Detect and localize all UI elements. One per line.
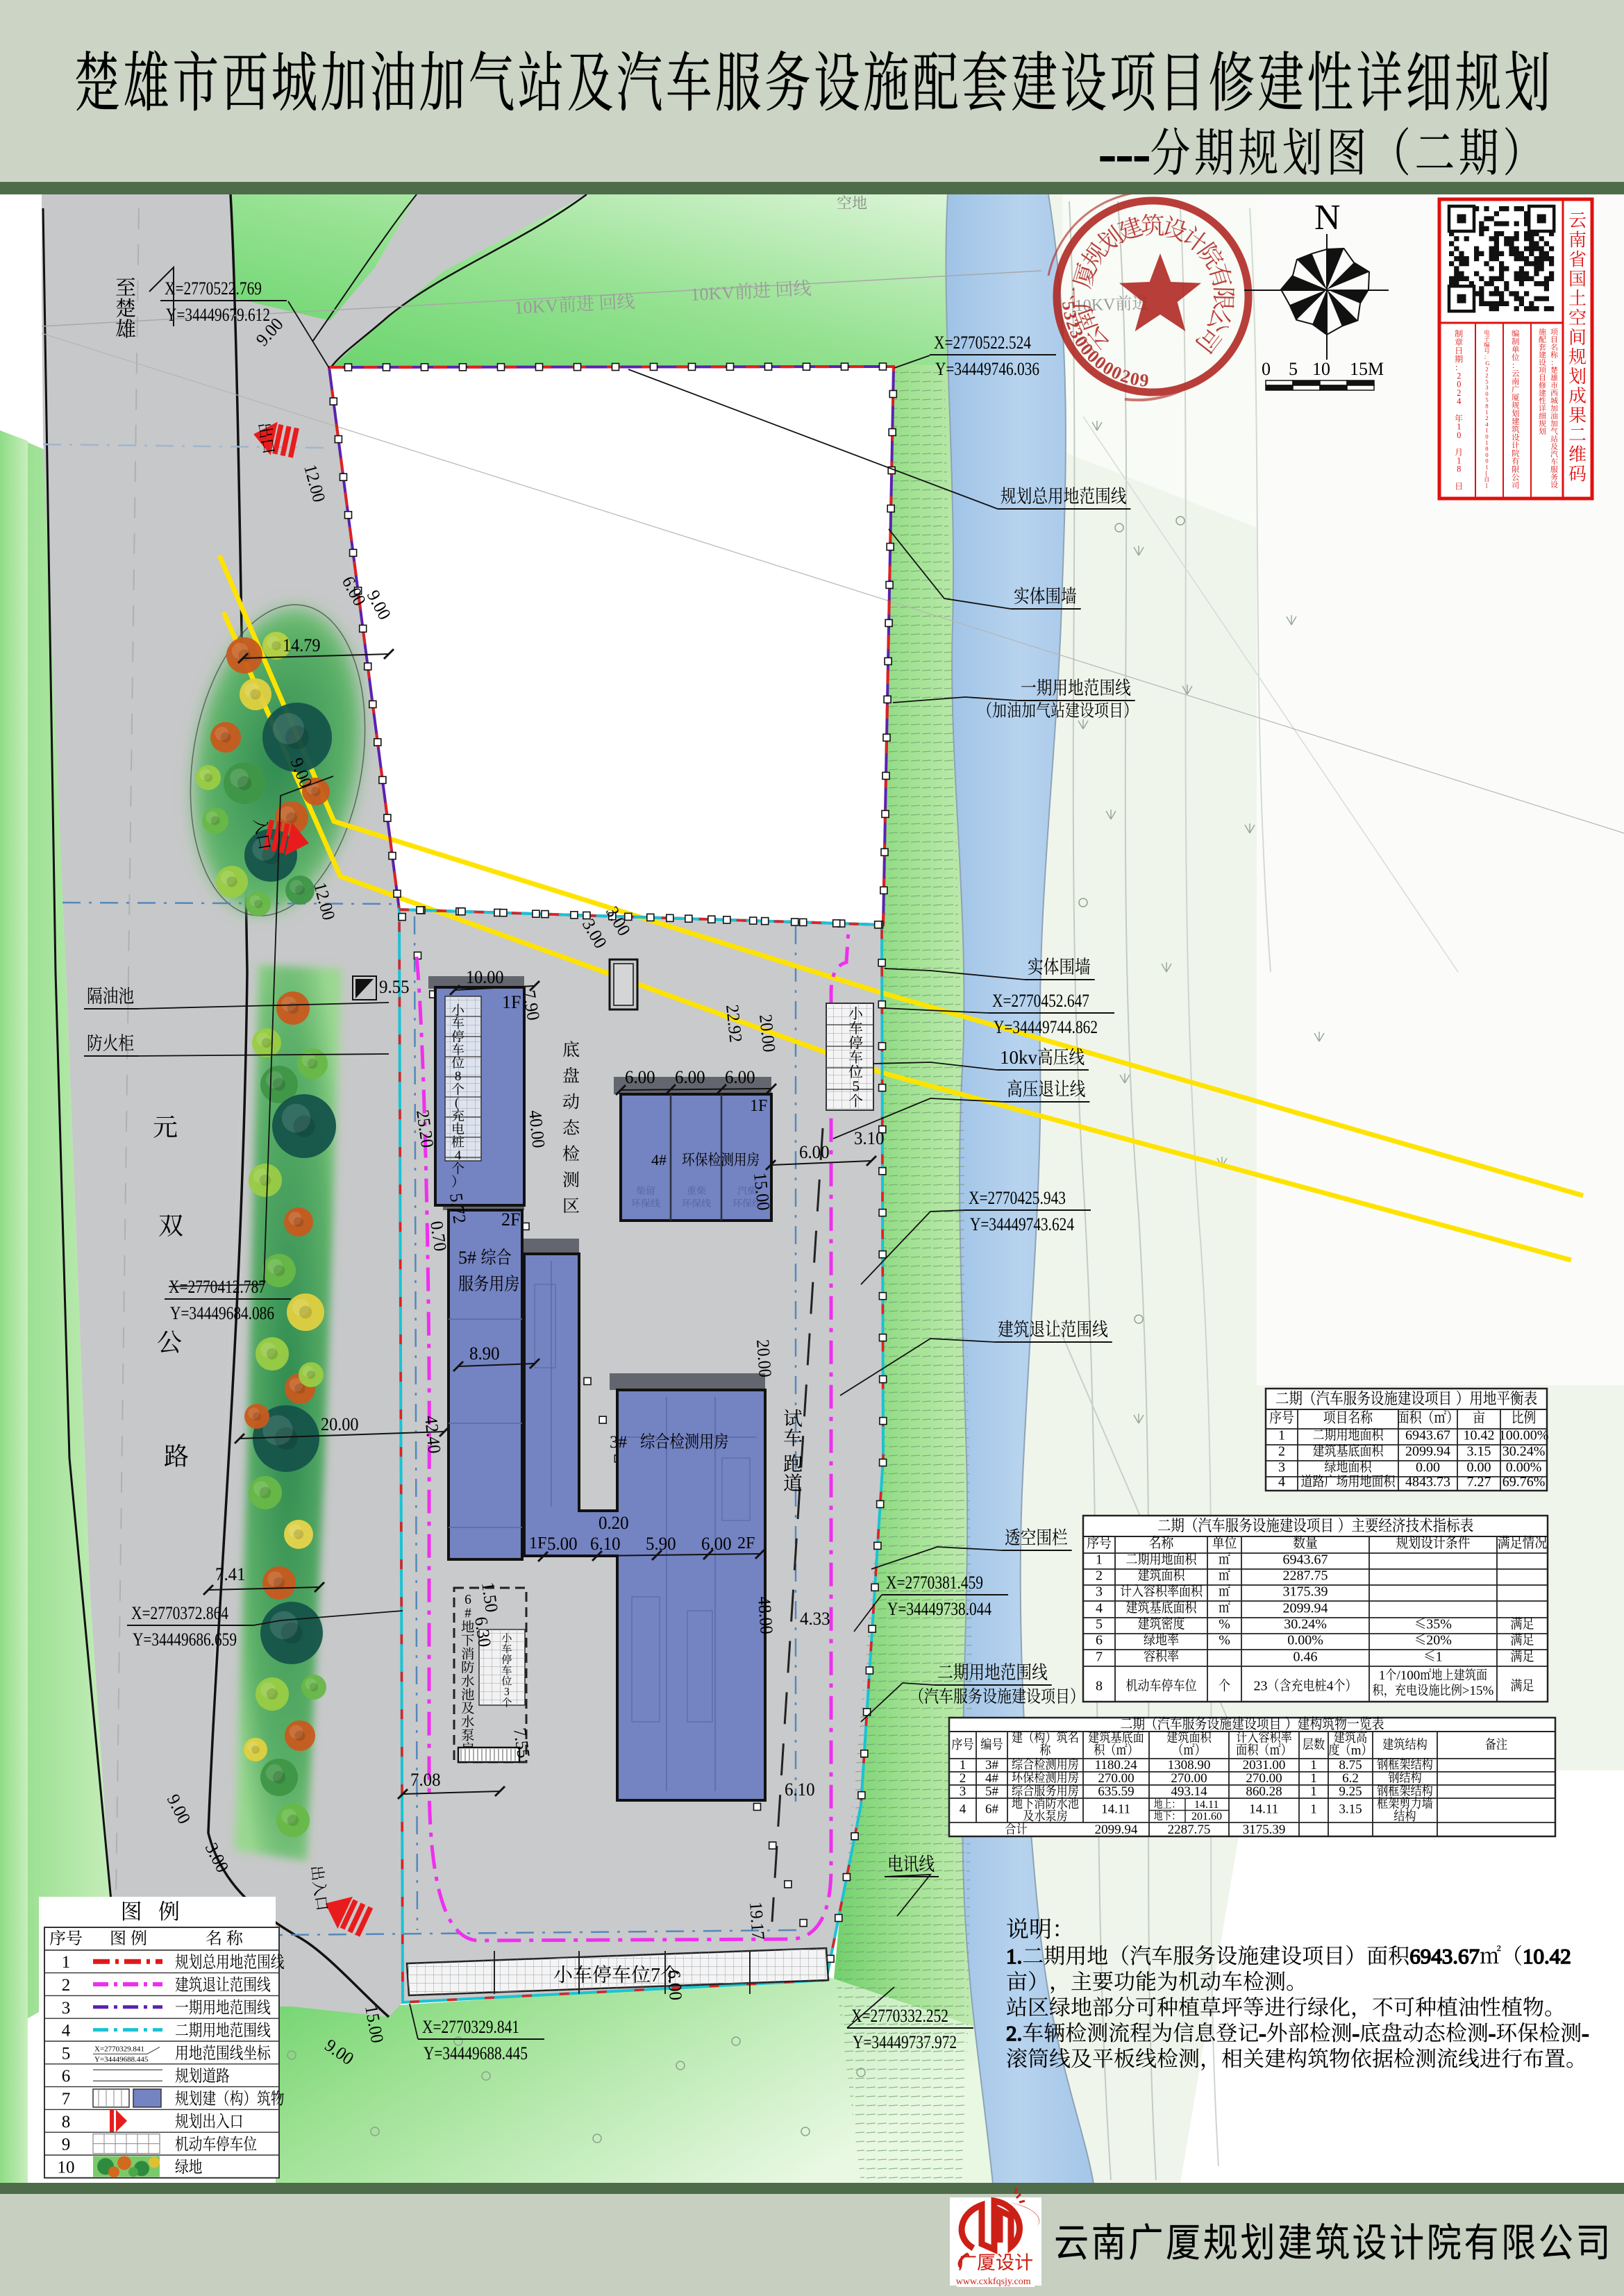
svg-text:Y=34449737.972: Y=34449737.972	[853, 2032, 957, 2052]
svg-text:23: 23	[1254, 1679, 1268, 1694]
svg-text:4.33: 4.33	[800, 1609, 830, 1629]
svg-text:1: 1	[62, 1953, 71, 1972]
svg-text:4: 4	[1457, 396, 1461, 406]
svg-text:3.10: 3.10	[854, 1128, 885, 1148]
svg-text:1: 1	[1310, 1802, 1317, 1817]
svg-text:X=2770425.943: X=2770425.943	[969, 1188, 1066, 1208]
svg-text:-: -	[1489, 2021, 1496, 2045]
svg-text:X=2770381.459: X=2770381.459	[886, 1573, 983, 1593]
svg-text:6943.67: 6943.67	[1409, 1944, 1480, 1968]
svg-text:4: 4	[62, 2022, 71, 2041]
svg-text:X=2770329.841: X=2770329.841	[94, 2045, 144, 2053]
svg-text:3175.39: 3175.39	[1283, 1584, 1328, 1600]
svg-text:5: 5	[1096, 1617, 1103, 1632]
svg-text:2: 2	[1278, 1444, 1285, 1459]
svg-text:4: 4	[960, 1802, 966, 1817]
svg-text:X=2770522.524: X=2770522.524	[934, 333, 1031, 353]
svg-text:6: 6	[62, 2067, 71, 2086]
svg-text:Y=34449688.445: Y=34449688.445	[424, 2043, 528, 2063]
svg-text:Y=34449686.659: Y=34449686.659	[133, 1629, 237, 1650]
svg-text:X=2770522.769: X=2770522.769	[165, 278, 262, 299]
svg-text:1.50: 1.50	[478, 1581, 502, 1614]
svg-text:0: 0	[1457, 430, 1461, 440]
svg-text:2.: 2.	[1006, 2021, 1022, 2045]
svg-text:4#: 4#	[985, 1771, 999, 1786]
svg-text:6.00: 6.00	[799, 1142, 830, 1162]
svg-text:493.14: 493.14	[1171, 1784, 1207, 1799]
svg-text:100.00%: 100.00%	[1499, 1428, 1549, 1443]
svg-text:3: 3	[62, 1999, 71, 2018]
svg-text:Y=34449743.624: Y=34449743.624	[970, 1214, 1074, 1234]
svg-text:3#: 3#	[610, 1433, 628, 1452]
svg-text:5#: 5#	[458, 1248, 476, 1268]
svg-text:(: (	[455, 1096, 459, 1110]
svg-text:3.15: 3.15	[1467, 1444, 1491, 1459]
svg-text:10.42: 10.42	[1523, 1944, 1571, 1968]
svg-text:3: 3	[1278, 1460, 1285, 1475]
svg-text:1F: 1F	[750, 1097, 767, 1115]
svg-text:Y=34449688.445: Y=34449688.445	[94, 2055, 149, 2063]
svg-text:1: 1	[1310, 1771, 1317, 1786]
svg-text:5.72: 5.72	[446, 1192, 470, 1225]
svg-text:5: 5	[853, 1078, 860, 1094]
svg-text:1F: 1F	[529, 1534, 546, 1552]
svg-text:2F: 2F	[501, 1209, 520, 1230]
svg-text:0: 0	[1262, 359, 1271, 379]
svg-text:0.46: 0.46	[1294, 1649, 1318, 1664]
svg-text:2: 2	[1096, 1568, 1103, 1584]
svg-text:8.90: 8.90	[469, 1343, 500, 1364]
svg-text:15M: 15M	[1350, 359, 1384, 379]
svg-text:8: 8	[62, 2113, 71, 2131]
svg-text:1: 1	[1379, 1668, 1386, 1683]
svg-text:6.10: 6.10	[590, 1534, 621, 1554]
svg-text:6.30: 6.30	[471, 1616, 495, 1648]
svg-text:0.00: 0.00	[1467, 1460, 1491, 1475]
svg-text:7: 7	[1096, 1649, 1103, 1664]
svg-text:4843.73: 4843.73	[1405, 1475, 1450, 1490]
svg-text:]: ]	[1485, 482, 1487, 489]
svg-text:6: 6	[1096, 1633, 1103, 1648]
svg-text:14.11: 14.11	[1249, 1802, 1278, 1817]
svg-text:6.00: 6.00	[675, 1067, 705, 1087]
svg-text:7: 7	[651, 1965, 660, 1986]
svg-text:860.28: 860.28	[1246, 1784, 1282, 1799]
svg-text:10: 10	[1312, 359, 1330, 379]
svg-text:1180.24: 1180.24	[1095, 1758, 1138, 1773]
svg-text:6943.67: 6943.67	[1405, 1428, 1450, 1443]
svg-text:-: -	[1259, 2021, 1266, 2045]
svg-text:X=2770372.864: X=2770372.864	[131, 1603, 228, 1623]
svg-text:1F: 1F	[502, 992, 521, 1012]
svg-text:2: 2	[960, 1771, 966, 1786]
svg-text:m: m	[1351, 1743, 1362, 1758]
svg-text:635.59: 635.59	[1098, 1784, 1134, 1799]
svg-text:69.76%: 69.76%	[1502, 1475, 1546, 1490]
svg-text:2287.75: 2287.75	[1283, 1568, 1328, 1584]
svg-text:6943.67: 6943.67	[1283, 1552, 1328, 1568]
svg-text:6.00: 6.00	[664, 1969, 686, 2001]
svg-text:7.27: 7.27	[1467, 1475, 1491, 1490]
svg-text:2031.00: 2031.00	[1243, 1758, 1286, 1773]
svg-text:20.00: 20.00	[755, 1014, 780, 1053]
svg-text:35%: 35%	[1426, 1617, 1452, 1632]
svg-text:6.00: 6.00	[725, 1067, 755, 1087]
svg-text:1.: 1.	[1006, 1944, 1022, 1968]
svg-text:40.00: 40.00	[525, 1109, 549, 1149]
svg-text:0.00%: 0.00%	[1287, 1633, 1323, 1648]
svg-text:[: [	[1485, 469, 1487, 476]
svg-text:22.92: 22.92	[722, 1004, 746, 1044]
svg-text:>15%: >15%	[1462, 1684, 1494, 1698]
svg-text:%: %	[1219, 1617, 1230, 1632]
svg-text:6: 6	[464, 1593, 471, 1607]
svg-text:3: 3	[960, 1784, 966, 1799]
svg-text:10: 10	[58, 2158, 75, 2177]
svg-text:30.24%: 30.24%	[1502, 1444, 1546, 1459]
svg-text:8: 8	[1096, 1679, 1103, 1694]
svg-text:8.75: 8.75	[1339, 1758, 1362, 1773]
svg-text:20%: 20%	[1426, 1633, 1452, 1648]
svg-text:10KV: 10KV	[690, 283, 735, 305]
svg-text:270.00: 270.00	[1246, 1771, 1282, 1786]
svg-text:1: 1	[1278, 1428, 1285, 1443]
svg-text:4: 4	[455, 1148, 462, 1163]
svg-text:0.20: 0.20	[598, 1513, 629, 1533]
svg-text:2287.75: 2287.75	[1168, 1822, 1211, 1837]
svg-text:3: 3	[1096, 1584, 1103, 1600]
svg-text:20.00: 20.00	[753, 1339, 776, 1377]
svg-text:Y=34449746.036: Y=34449746.036	[935, 359, 1039, 379]
svg-text:20.00: 20.00	[321, 1414, 359, 1434]
svg-text:19.17: 19.17	[746, 1901, 769, 1940]
svg-text:1: 1	[1310, 1784, 1317, 1799]
svg-text:9.25: 9.25	[1339, 1784, 1362, 1799]
svg-text:0.00%: 0.00%	[1506, 1460, 1542, 1475]
svg-text:9.55: 9.55	[379, 977, 410, 997]
svg-text:3: 3	[504, 1686, 510, 1698]
svg-text:-: -	[1353, 2021, 1359, 2045]
svg-text:---: ---	[1099, 126, 1150, 183]
svg-text:7: 7	[62, 2090, 71, 2109]
svg-text:4: 4	[1327, 1679, 1334, 1694]
svg-text:1: 1	[1096, 1552, 1103, 1568]
svg-text:10KV: 10KV	[514, 296, 559, 318]
svg-text:15.00: 15.00	[750, 1172, 774, 1212]
svg-text:2: 2	[62, 1976, 71, 1995]
svg-text:5: 5	[62, 2044, 71, 2063]
svg-text:1: 1	[960, 1758, 966, 1773]
svg-text:6.00: 6.00	[625, 1067, 655, 1087]
svg-text:N: N	[1314, 198, 1341, 237]
svg-text:6#: 6#	[985, 1802, 999, 1817]
svg-text:201.60: 201.60	[1191, 1811, 1222, 1822]
svg-text:6.00: 6.00	[701, 1534, 732, 1554]
svg-text:Y=34449679.612: Y=34449679.612	[166, 305, 270, 325]
svg-text:1308.90: 1308.90	[1168, 1758, 1211, 1773]
svg-text:-: -	[1582, 2021, 1589, 2045]
svg-text:14.11: 14.11	[1101, 1802, 1130, 1817]
svg-text:2099.94: 2099.94	[1405, 1444, 1450, 1459]
svg-text:2F: 2F	[737, 1534, 755, 1552]
svg-text:3.15: 3.15	[1339, 1802, 1362, 1817]
svg-text:10.00: 10.00	[466, 967, 504, 987]
svg-text:3#: 3#	[985, 1758, 999, 1773]
svg-text:#: #	[464, 1607, 471, 1621]
svg-text:1: 1	[1310, 1758, 1317, 1773]
svg-text:14.79: 14.79	[283, 635, 321, 655]
svg-text:X=2770452.647: X=2770452.647	[992, 991, 1089, 1011]
svg-text:7.55: 7.55	[510, 1727, 534, 1759]
svg-text:X=2770329.841: X=2770329.841	[422, 2017, 519, 2037]
svg-text:14.11: 14.11	[1194, 1799, 1219, 1811]
svg-text:30.24%: 30.24%	[1284, 1617, 1327, 1632]
svg-text:2099.94: 2099.94	[1283, 1600, 1328, 1616]
svg-text:3175.39: 3175.39	[1243, 1822, 1286, 1837]
svg-text:48.00: 48.00	[754, 1595, 777, 1634]
svg-text:2099.94: 2099.94	[1095, 1822, 1138, 1837]
svg-text:7.41: 7.41	[215, 1564, 246, 1584]
svg-text:270.00: 270.00	[1171, 1771, 1207, 1786]
svg-text:Y=34449684.086: Y=34449684.086	[170, 1303, 274, 1323]
svg-text:X=2770412.787: X=2770412.787	[169, 1277, 266, 1297]
svg-text:X=2770332.252: X=2770332.252	[851, 2006, 948, 2026]
svg-text:0.70: 0.70	[426, 1220, 451, 1252]
svg-text:4#: 4#	[651, 1151, 667, 1168]
svg-text:Y=34449738.044: Y=34449738.044	[887, 1599, 991, 1619]
svg-text:/100: /100	[1397, 1668, 1421, 1683]
svg-text:6.2: 6.2	[1342, 1771, 1359, 1786]
svg-text:5.00: 5.00	[547, 1534, 578, 1554]
svg-text:7.08: 7.08	[410, 1770, 441, 1790]
svg-text:5#: 5#	[985, 1784, 999, 1799]
svg-text:4: 4	[1096, 1600, 1103, 1616]
svg-text:0.00: 0.00	[1416, 1460, 1440, 1475]
svg-text:5: 5	[1289, 359, 1298, 379]
svg-text:4: 4	[1278, 1475, 1285, 1490]
svg-text:10.42: 10.42	[1464, 1428, 1495, 1443]
svg-text:9: 9	[62, 2136, 71, 2154]
svg-text:8: 8	[1457, 464, 1461, 474]
svg-text:Y=34449744.862: Y=34449744.862	[994, 1017, 1098, 1037]
svg-text:9: 9	[1139, 370, 1149, 391]
svg-text:6.10: 6.10	[785, 1779, 815, 1800]
svg-text:1: 1	[1436, 1649, 1443, 1664]
svg-text:8: 8	[455, 1069, 462, 1084]
svg-text:10kv: 10kv	[1000, 1047, 1038, 1068]
svg-text:www.cxkfqsjy.com: www.cxkfqsjy.com	[956, 2277, 1031, 2287]
svg-text:%: %	[1219, 1633, 1230, 1648]
svg-text:270.00: 270.00	[1098, 1771, 1134, 1786]
